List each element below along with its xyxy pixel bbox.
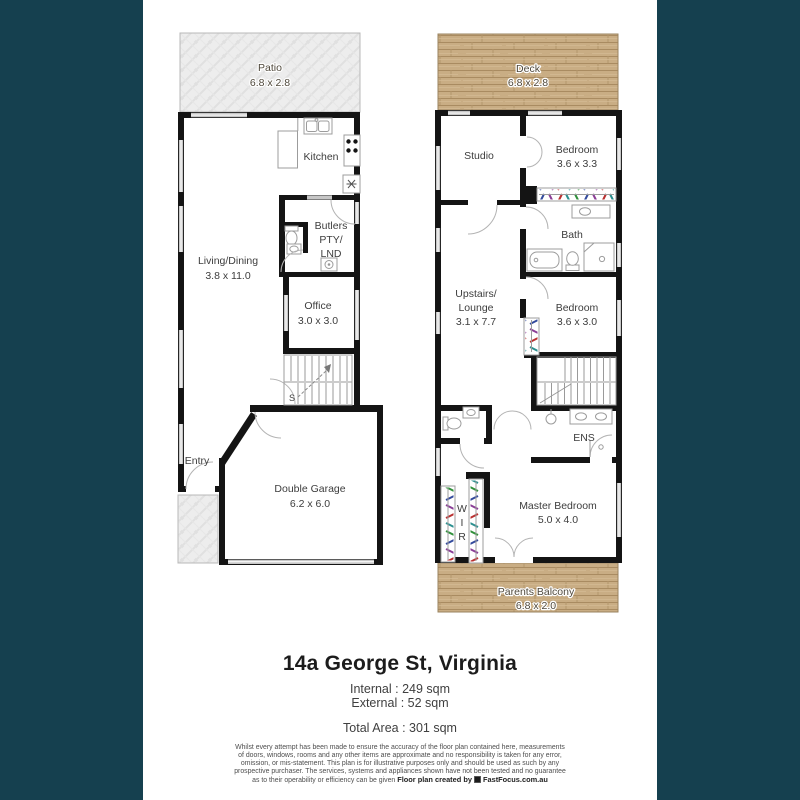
wir-label-w: W <box>457 503 467 515</box>
room-label-lounge-1: Upstairs/ <box>455 288 497 300</box>
credit-text: Floor plan created by <box>397 775 472 784</box>
floorplan-sheet: S Patio 6.8 x 2.8 Kitchen Butlers PTY/ L… <box>143 0 657 800</box>
room-label-bedroom-mid: Bedroom <box>556 302 599 314</box>
room-label-butlers-1: Butlers <box>315 220 348 232</box>
ens-basin-icon <box>546 409 556 424</box>
ground-interior-walls <box>279 195 360 354</box>
room-label-balcony: Parents Balcony <box>498 586 575 598</box>
room-dims-deck: 6.8 x 2.8 <box>508 77 548 89</box>
hot-water-unit-icon <box>343 175 360 193</box>
room-dims-living-dining: 3.8 x 11.0 <box>205 270 250 282</box>
stairs-label: S <box>289 393 295 403</box>
room-label-office: Office <box>304 300 331 312</box>
ground-floor-plan: S Patio 6.8 x 2.8 Kitchen Butlers PTY/ L… <box>178 33 383 565</box>
floorplan-drawing: S Patio 6.8 x 2.8 Kitchen Butlers PTY/ L… <box>143 0 657 635</box>
wir-rack-right-icon <box>469 479 483 563</box>
room-dims-office: 3.0 x 3.0 <box>298 315 338 327</box>
upper-stairs <box>537 357 616 405</box>
powder-room-toilet-icon <box>285 226 298 245</box>
bathtub-icon <box>527 249 562 271</box>
room-label-butlers-2: PTY/ <box>319 234 342 246</box>
room-label-kitchen: Kitchen <box>303 151 338 163</box>
entry-porch-area <box>178 495 218 563</box>
room-label-deck: Deck <box>516 63 541 75</box>
garage-angled-wall <box>222 414 254 463</box>
room-label-butlers-3: LND <box>320 248 341 260</box>
room-dims-bedroom-mid: 3.6 x 3.0 <box>557 316 597 328</box>
room-label-ens: ENS <box>573 432 595 444</box>
brand-text: FastFocus.com.au <box>483 775 548 784</box>
powder-room-basin-icon <box>287 244 301 254</box>
room-label-entry: Entry <box>185 455 210 467</box>
wir-label-r: R <box>458 531 466 543</box>
bedroom-mid-wardrobe-icon <box>524 318 539 355</box>
wir-label-i: I <box>461 517 464 529</box>
garage-door <box>228 560 374 564</box>
room-dims-bedroom-front: 3.6 x 3.3 <box>557 158 597 170</box>
disclaimer: Whilst every attempt has been made to en… <box>232 744 568 785</box>
room-label-garage: Double Garage <box>274 483 345 495</box>
room-dims-lounge: 3.1 x 7.7 <box>456 316 496 328</box>
stove-icon <box>344 135 360 166</box>
room-label-patio: Patio <box>258 62 282 74</box>
garage-internal-door-arc <box>255 412 281 438</box>
wir-rack-left-icon <box>441 486 455 562</box>
room-dims-patio: 6.8 x 2.8 <box>250 77 290 89</box>
room-label-bedroom-front: Bedroom <box>556 144 599 156</box>
total-area-text: Total Area : 301 sqm <box>143 721 657 735</box>
internal-area-text: Internal : 249 sqm <box>143 682 657 696</box>
page-title: 14a George St, Virginia <box>143 652 657 676</box>
bath-toilet-icon <box>566 252 579 271</box>
room-dims-master: 5.0 x 4.0 <box>538 514 578 526</box>
upper-floor-plan: Deck 6.8 x 2.8 Studio Bedroom 3.6 x 3.3 … <box>435 34 622 612</box>
room-label-living-dining: Living/Dining <box>198 255 258 267</box>
room-label-studio: Studio <box>464 150 494 162</box>
kitchen-sink-icon <box>304 118 332 134</box>
room-dims-garage: 6.2 x 6.0 <box>290 498 330 510</box>
room-label-bath: Bath <box>561 229 583 241</box>
external-area-text: External : 52 sqm <box>143 696 657 710</box>
fastfocus-logo-icon <box>474 776 481 783</box>
room-label-master: Master Bedroom <box>519 500 597 512</box>
bath-shower-icon <box>584 243 614 271</box>
wc-basin-icon <box>463 407 479 418</box>
room-dims-balcony: 6.8 x 2.0 <box>516 600 556 612</box>
bedroom-front-wardrobe-icon <box>537 188 616 201</box>
wc-toilet-icon <box>443 417 461 430</box>
room-label-lounge-2: Lounge <box>458 302 493 314</box>
kitchen-counter <box>278 118 298 168</box>
ens-vanity-icon <box>570 409 612 424</box>
bath-vanity-icon <box>572 205 610 218</box>
ground-stairs: S <box>284 355 352 405</box>
